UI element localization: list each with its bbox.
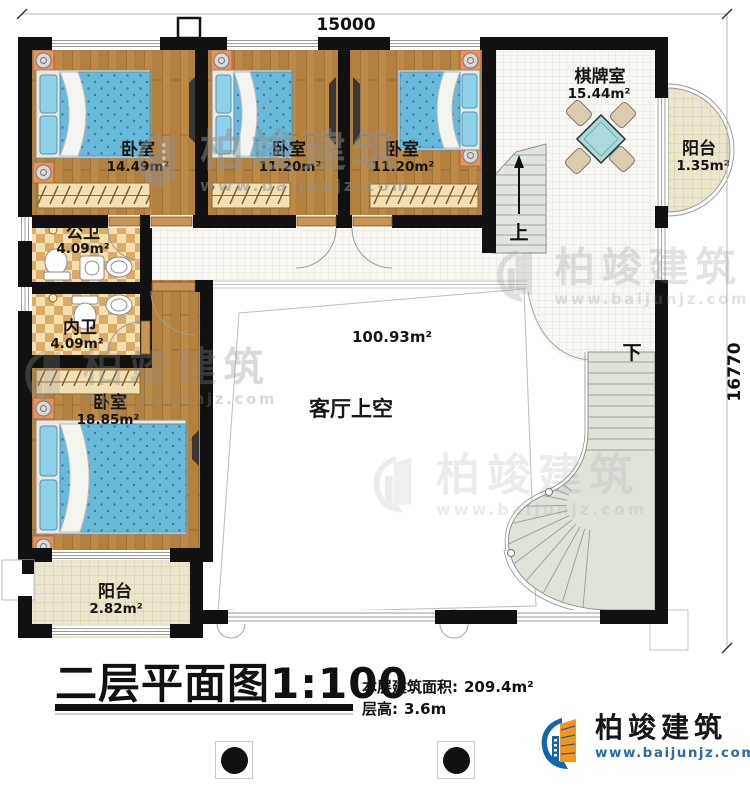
dimension-right-value: 16770	[725, 342, 745, 401]
room-area-public-bath: 4.09m²	[56, 241, 109, 257]
room-label-balcony-right: 阳台	[682, 138, 716, 159]
room-area-bedroom-4: 18.85m²	[77, 412, 140, 428]
corridor-railing	[207, 281, 527, 288]
room-label-public-bath: 公卫	[66, 223, 100, 243]
room-area-bedroom-3: 11.20m²	[372, 159, 435, 175]
floor-plan-drawing: 卧室 14.49m² 卧室 11.20m² 卧室 11.20m² 棋牌室 15.…	[0, 0, 750, 660]
dimension-top-value: 15000	[316, 15, 375, 35]
company-logo-icon	[538, 714, 588, 776]
room-label-bedroom-1: 卧室	[121, 139, 155, 160]
stair-newel	[546, 489, 553, 496]
floor-area-label: 本层建筑面积:	[362, 678, 458, 696]
plan-specs: 本层建筑面积:209.4m² 层高:3.6m	[362, 676, 534, 720]
stair-newel	[508, 550, 515, 557]
room-label-living-void: 客厅上空	[309, 397, 393, 421]
plan-title: 二层平面图1:100	[55, 650, 409, 711]
column-marker	[215, 741, 253, 779]
tv	[329, 77, 336, 145]
room-area-balcony-left: 2.82m²	[89, 601, 142, 617]
room-label-bedroom-4: 卧室	[93, 392, 127, 413]
room-area-bedroom-1: 14.49m²	[107, 159, 170, 175]
company-logo-url: www.baijunjz.com	[595, 747, 750, 761]
stair-down-label: 下	[622, 342, 641, 364]
title-underline-light	[55, 713, 353, 715]
room-label-bedroom-3: 卧室	[385, 139, 419, 160]
room-label-chess: 棋牌室	[575, 66, 626, 87]
room-area-balcony-right: 1.35m²	[676, 158, 729, 174]
floor-height-row: 层高:3.6m	[362, 698, 534, 720]
floor-area-row: 本层建筑面积:209.4m²	[362, 676, 534, 698]
room-label-balcony-left: 阳台	[98, 581, 132, 602]
room-area-private-bath: 4.09m²	[50, 336, 103, 352]
lamp	[49, 294, 57, 302]
stair-up-label: 上	[509, 222, 528, 244]
floor-height-label: 层高:	[362, 700, 398, 718]
company-logo-brand: 柏竣建筑	[595, 714, 750, 742]
plan-title-text: 二层平面图	[55, 659, 270, 708]
room-area-chess: 15.44m²	[568, 86, 631, 102]
chimney	[178, 18, 200, 38]
title-underline	[55, 704, 353, 711]
floor-plan-page: 卧室 14.49m² 卧室 11.20m² 卧室 11.20m² 棋牌室 15.…	[0, 0, 750, 789]
corner-pier-left	[2, 560, 34, 638]
column-marker	[437, 741, 475, 779]
company-logo: 柏竣建筑 www.baijunjz.com	[538, 714, 750, 776]
tv	[353, 77, 360, 145]
room-label-private-bath: 内卫	[63, 317, 97, 338]
column-dot	[221, 747, 248, 774]
floor-area-value: 209.4m²	[464, 678, 534, 696]
room-area-living-void: 100.93m²	[352, 328, 432, 346]
tv	[189, 76, 196, 144]
room-area-bedroom-2: 11.20m²	[259, 159, 322, 175]
column-dot	[443, 747, 470, 774]
floor-height-value: 3.6m	[404, 700, 446, 718]
room-label-bedroom-2: 卧室	[272, 139, 306, 160]
